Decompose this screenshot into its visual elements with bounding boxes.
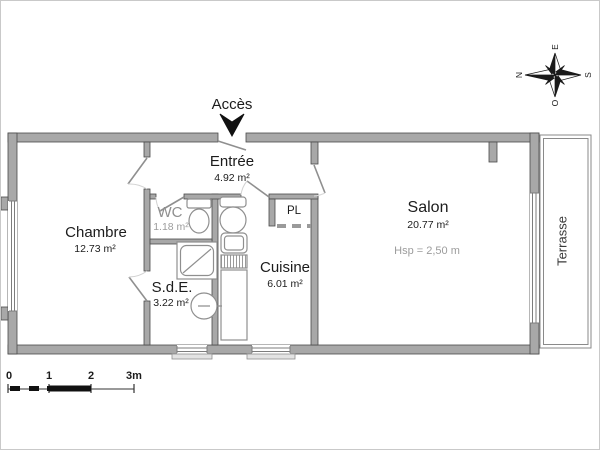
wall-chambre-mid (144, 189, 150, 271)
wall-salon-stub (311, 142, 318, 164)
wall-top-right (246, 133, 539, 142)
scale-bar-graphic (8, 384, 134, 393)
wall-chambre-bottom (144, 301, 150, 345)
round-basin-icon (220, 197, 246, 233)
compass-south-label: S (583, 72, 593, 78)
door-acces (218, 141, 246, 150)
kitchen-counter (221, 270, 247, 340)
room-label-cuisine: Cuisine (260, 260, 310, 275)
window-sde-bottom (172, 345, 212, 359)
window-chambre-left (8, 201, 17, 311)
wall-salon-top-stub (489, 142, 497, 162)
window-stub-top (1, 197, 8, 210)
scale-tick-0: 0 (6, 371, 12, 382)
door-salon (314, 165, 325, 196)
room-label-entree: Entrée (210, 154, 254, 169)
scale-tick-3: 3m (126, 371, 142, 382)
room-area-entree: 4.92 m² (214, 173, 250, 184)
wall-entree-seg3 (269, 194, 318, 199)
compass-east-label: E (550, 44, 560, 50)
room-label-sde: S.d.E. (152, 280, 193, 295)
access-label: Accès (212, 97, 253, 112)
room-area-sde: 3.22 m² (153, 298, 189, 309)
window-salon-terrasse (530, 193, 539, 323)
door-chambre (128, 158, 147, 189)
door-sde (129, 271, 147, 301)
room-area-cuisine: 6.01 m² (267, 279, 303, 290)
room-label-terrasse: Terrasse (556, 216, 569, 266)
room-label-salon: Salon (408, 200, 449, 216)
room-area-chambre: 12.73 m² (74, 244, 115, 255)
scale-tick-1: 1 (46, 371, 52, 382)
hob-icon (221, 255, 247, 268)
access-arrow-icon (220, 114, 244, 136)
compass-rose: N E S O (514, 44, 593, 106)
scale-tick-2: 2 (88, 371, 94, 382)
wall-top-left (8, 133, 218, 142)
wall-placard-left (269, 199, 275, 226)
kitchen-sink-icon (221, 233, 247, 253)
floor-plan-page: N E S O Accès Entrée 4.92 m² Chambre 12.… (0, 0, 600, 450)
room-label-placard: PL (287, 206, 301, 218)
compass-north-label: N (514, 72, 524, 78)
wall-entree-seg1 (150, 194, 156, 199)
toilet-icon (187, 199, 211, 233)
room-area-salon: 20.77 m² (407, 220, 448, 231)
room-label-wc: WC (158, 205, 183, 220)
compass-west-label: O (550, 99, 560, 106)
wall-chambre-top (144, 142, 150, 157)
room-label-chambre: Chambre (65, 225, 127, 240)
shower-icon (177, 242, 217, 279)
window-cuisine-bottom (247, 345, 295, 359)
room-area-wc: 1.18 m² (153, 222, 189, 233)
wall-salon-left (311, 196, 318, 345)
ceiling-height-label: Hsp = 2,50 m (394, 246, 460, 257)
window-stub-bottom (1, 307, 8, 320)
